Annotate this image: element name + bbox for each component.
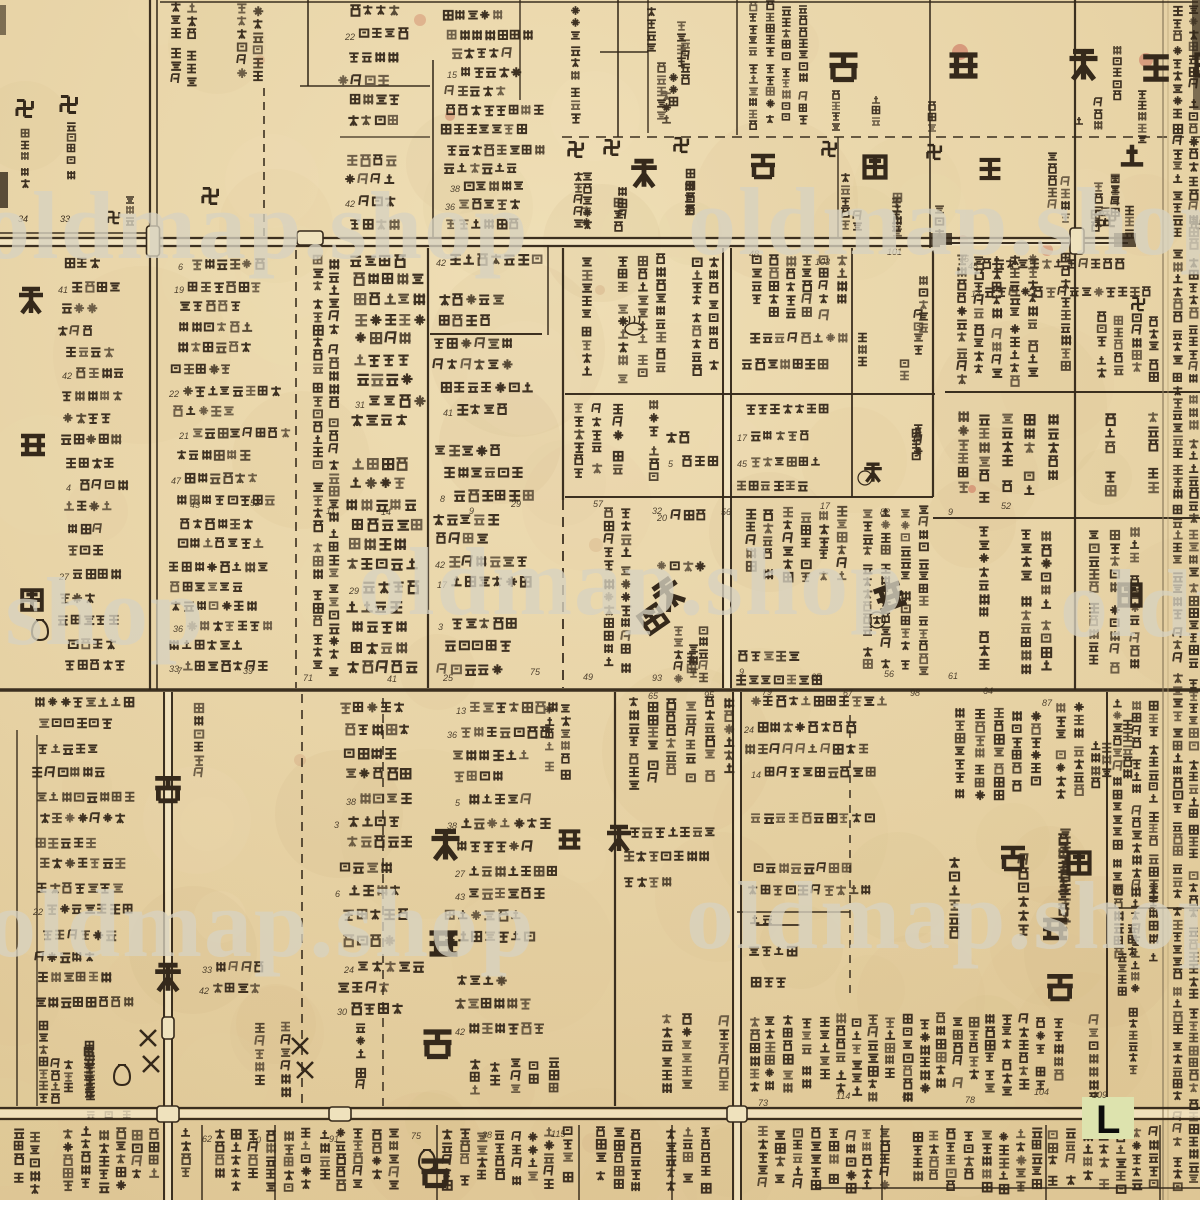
svg-text:52: 52 [250, 498, 260, 508]
svg-text:114: 114 [836, 1091, 850, 1101]
svg-text:oldmap.shop: oldmap.shop [688, 168, 1200, 275]
svg-text:79: 79 [762, 687, 772, 697]
svg-text:39: 39 [243, 666, 253, 676]
svg-text:42: 42 [62, 371, 72, 381]
svg-text:9: 9 [739, 667, 744, 677]
svg-text:38: 38 [346, 797, 356, 807]
svg-text:17: 17 [820, 501, 831, 511]
svg-text:71: 71 [303, 673, 313, 683]
svg-text:19: 19 [174, 285, 184, 295]
svg-text:45: 45 [737, 459, 748, 469]
svg-text:115: 115 [551, 1129, 566, 1139]
svg-text:24: 24 [743, 725, 754, 735]
svg-text:43: 43 [190, 500, 200, 510]
svg-text:42: 42 [199, 986, 209, 996]
svg-text:22: 22 [168, 389, 179, 399]
svg-text:4: 4 [66, 483, 71, 493]
svg-text:109: 109 [1092, 1090, 1107, 1100]
svg-text:30: 30 [337, 1007, 347, 1017]
svg-text:14: 14 [381, 507, 391, 517]
svg-text:49: 49 [583, 672, 593, 682]
svg-text:L: L [1096, 1098, 1120, 1142]
svg-text:73: 73 [758, 1098, 768, 1108]
svg-text:25: 25 [442, 673, 454, 683]
svg-text:17: 17 [737, 433, 748, 443]
svg-text:32: 32 [652, 506, 662, 516]
svg-text:oldmap.shop: oldmap.shop [686, 862, 1200, 969]
svg-text:82: 82 [880, 507, 890, 517]
svg-text:64: 64 [983, 686, 993, 696]
svg-text:oldmap.shop: oldmap.shop [0, 870, 536, 977]
svg-text:95: 95 [704, 690, 715, 700]
svg-text:29: 29 [510, 499, 521, 509]
svg-text:57: 57 [593, 499, 604, 509]
svg-text:62: 62 [202, 1134, 212, 1144]
svg-text:93: 93 [652, 673, 662, 683]
svg-text:31: 31 [355, 400, 365, 410]
svg-text:22: 22 [344, 32, 355, 42]
svg-text:41: 41 [387, 674, 397, 684]
svg-text:15: 15 [447, 70, 458, 80]
svg-text:36: 36 [447, 730, 457, 740]
svg-text:41: 41 [58, 285, 68, 295]
svg-text:3: 3 [334, 820, 339, 830]
svg-text:oldmap.shop: oldmap.shop [0, 172, 530, 279]
svg-text:98: 98 [910, 688, 920, 698]
svg-text:56: 56 [721, 507, 731, 517]
svg-text:47: 47 [171, 476, 182, 486]
svg-text:8: 8 [440, 494, 445, 504]
svg-text:45: 45 [902, 1091, 913, 1101]
svg-text:61: 61 [948, 671, 958, 681]
svg-text:oldmap.shop: oldmap.shop [0, 558, 206, 665]
svg-text:75: 75 [411, 1131, 422, 1141]
svg-text:4: 4 [630, 1131, 635, 1141]
svg-text:78: 78 [965, 1095, 975, 1105]
svg-text:38: 38 [482, 1130, 492, 1140]
svg-text:56: 56 [884, 669, 894, 679]
svg-text:9: 9 [948, 507, 953, 517]
svg-text:52: 52 [1001, 501, 1011, 511]
svg-text:75: 75 [530, 667, 541, 677]
svg-text:87: 87 [1042, 698, 1053, 708]
svg-text:41: 41 [443, 408, 453, 418]
svg-text:13: 13 [456, 706, 466, 716]
svg-text:9: 9 [469, 506, 474, 516]
svg-text:11: 11 [326, 506, 335, 516]
svg-text:67: 67 [843, 688, 854, 698]
svg-text:91: 91 [329, 1134, 339, 1144]
svg-text:oldmap.shop: oldmap.shop [1060, 550, 1200, 657]
svg-text:42: 42 [455, 1027, 465, 1037]
svg-text:14: 14 [971, 289, 981, 299]
svg-text:14: 14 [751, 770, 761, 780]
svg-text:21: 21 [178, 431, 189, 441]
svg-text:65: 65 [648, 691, 659, 701]
svg-text:10: 10 [251, 1135, 261, 1145]
svg-text:65: 65 [811, 672, 822, 682]
svg-text:oldmap.shop: oldmap.shop [358, 528, 906, 635]
svg-text:104: 104 [1034, 1087, 1049, 1097]
